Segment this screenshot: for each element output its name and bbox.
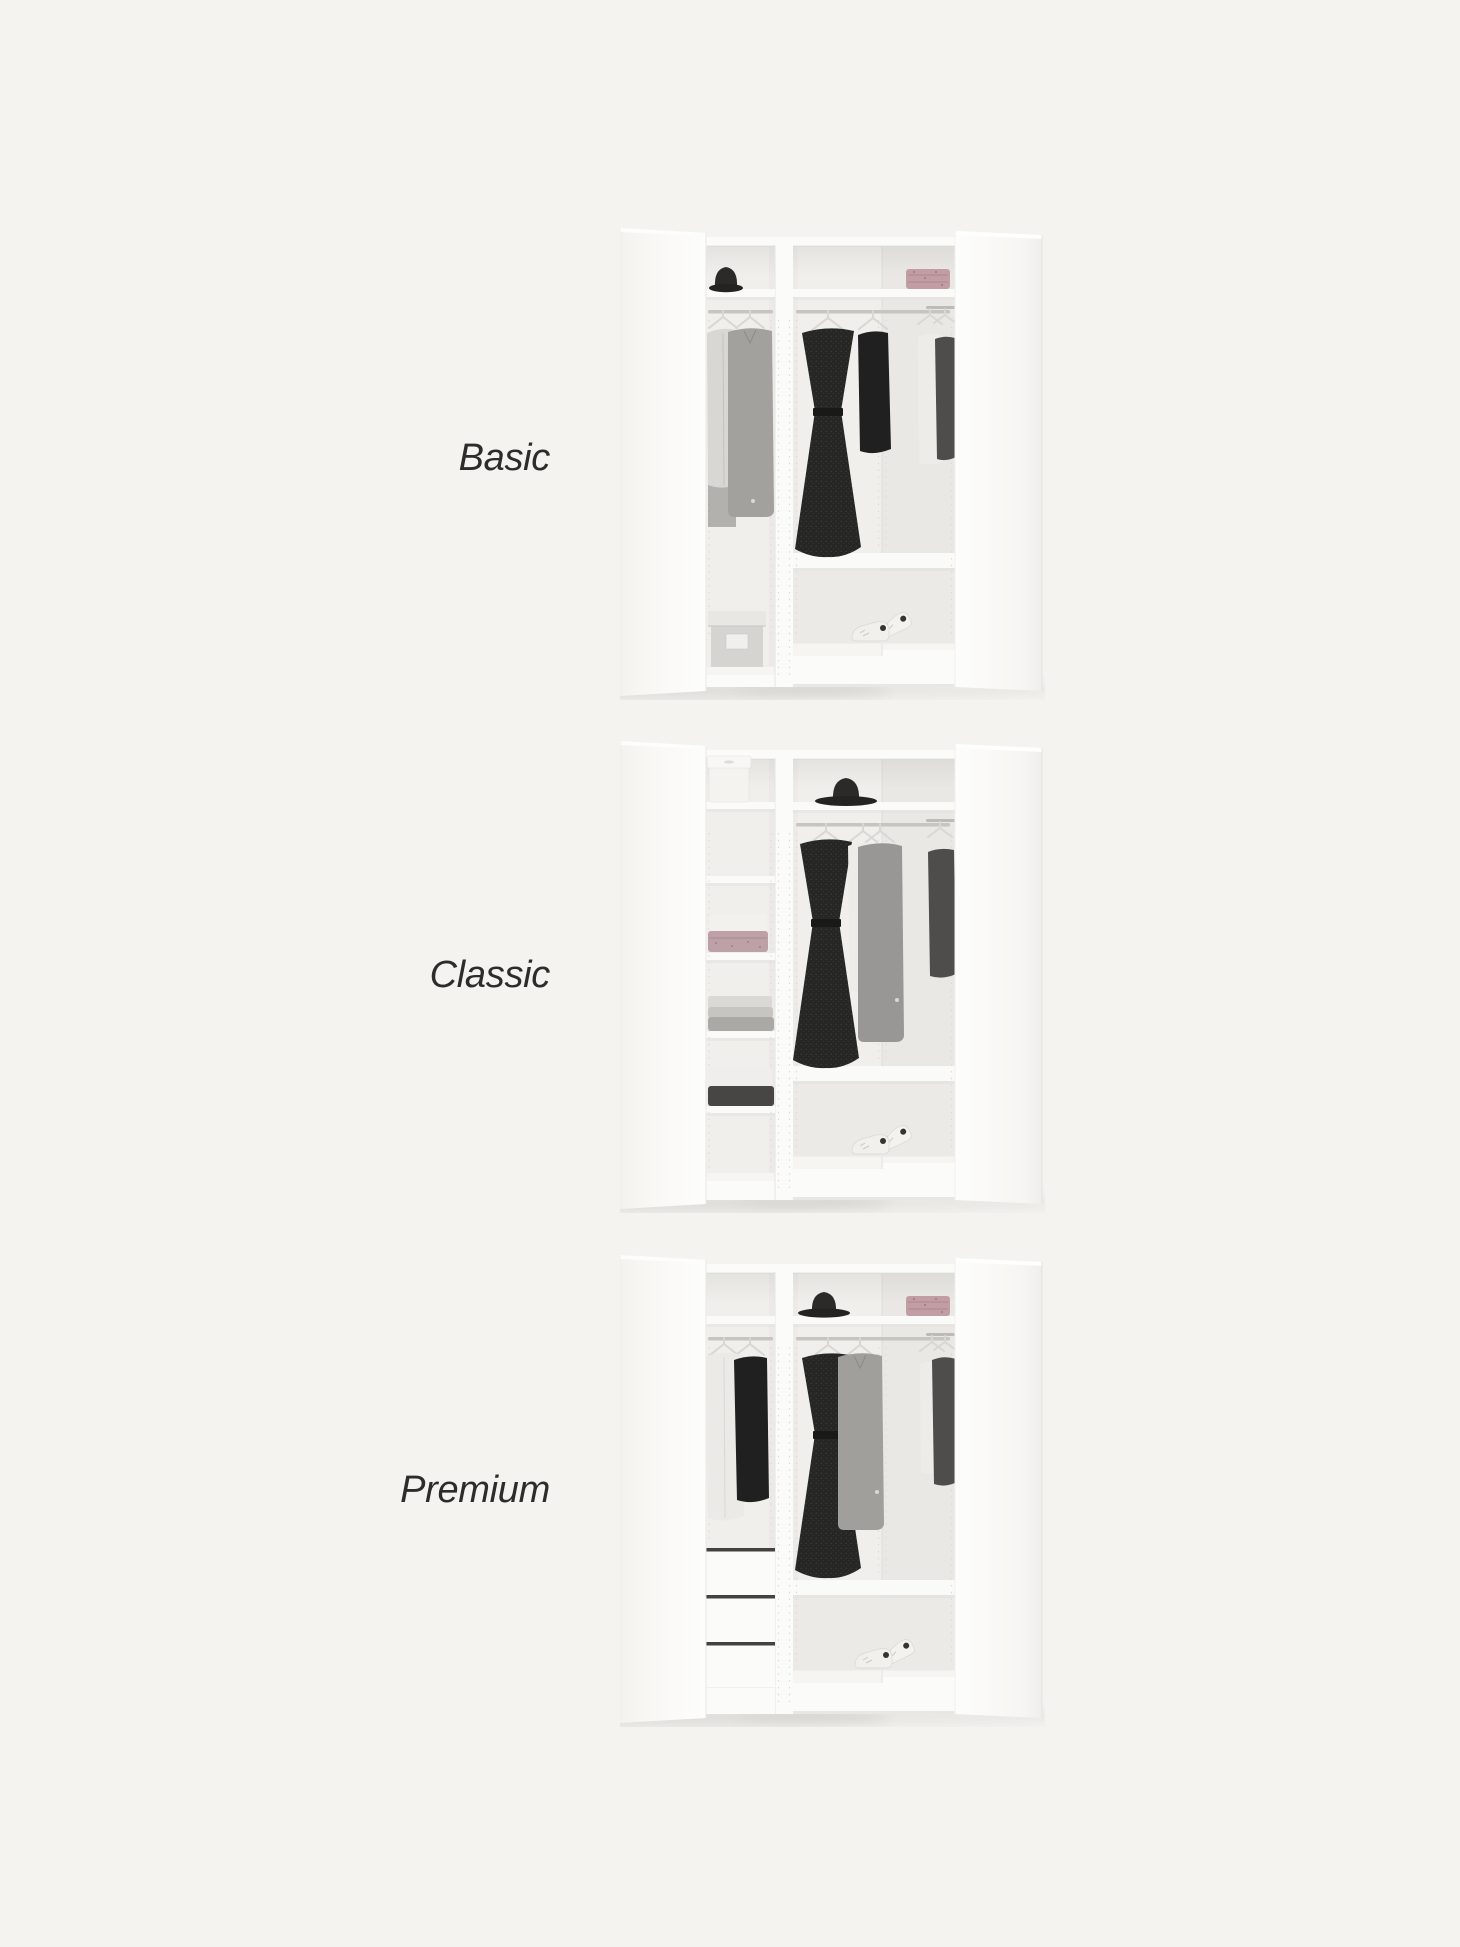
grey-coat (838, 1353, 884, 1530)
clothes-rail-left (708, 1337, 773, 1341)
corner-bench (793, 553, 955, 687)
left-door (620, 228, 706, 696)
folded-pink-textile (906, 1296, 950, 1316)
corner-bench (793, 1580, 955, 1714)
variant-label-classic: Classic (150, 955, 550, 995)
storage-box (708, 611, 766, 667)
left-door (620, 1255, 706, 1723)
right-door (955, 744, 1042, 1204)
variant-label-premium: Premium (150, 1470, 550, 1510)
dark-tshirt (935, 337, 956, 460)
right-door (955, 1258, 1042, 1718)
wardrobe-illustration-premium (620, 1252, 1045, 1727)
clothes-rail-right (926, 1333, 955, 1336)
corner-bench (793, 1066, 955, 1200)
clothes-rail-left (708, 310, 773, 314)
black-top (858, 331, 891, 453)
variant-label-premium-text: Premium (400, 1469, 550, 1511)
clothes-rail-corner (796, 823, 950, 827)
variant-label-basic-text: Basic (459, 437, 550, 479)
variant-label-basic: Basic (150, 438, 550, 478)
black-top (734, 1356, 769, 1502)
dark-tshirt (932, 1357, 957, 1485)
folded-towels (708, 914, 768, 952)
folded-pink-textile (906, 269, 950, 289)
grey-coat (728, 328, 774, 517)
left-door (620, 741, 706, 1209)
wardrobe-illustration-classic (620, 738, 1045, 1213)
grey-coat (858, 843, 904, 1042)
right-door (955, 231, 1042, 691)
storage-bin (707, 756, 751, 802)
wardrobe-illustration-basic (620, 225, 1045, 700)
drawer-unit (706, 1548, 775, 1714)
folded-clothes-stack (708, 1068, 774, 1106)
variant-label-classic-text: Classic (430, 954, 550, 996)
page-canvas: Basic (0, 0, 1460, 1947)
dark-tshirt (928, 849, 956, 978)
folded-grey-knitwear (708, 996, 774, 1031)
clothes-rail-corner (796, 1337, 950, 1341)
